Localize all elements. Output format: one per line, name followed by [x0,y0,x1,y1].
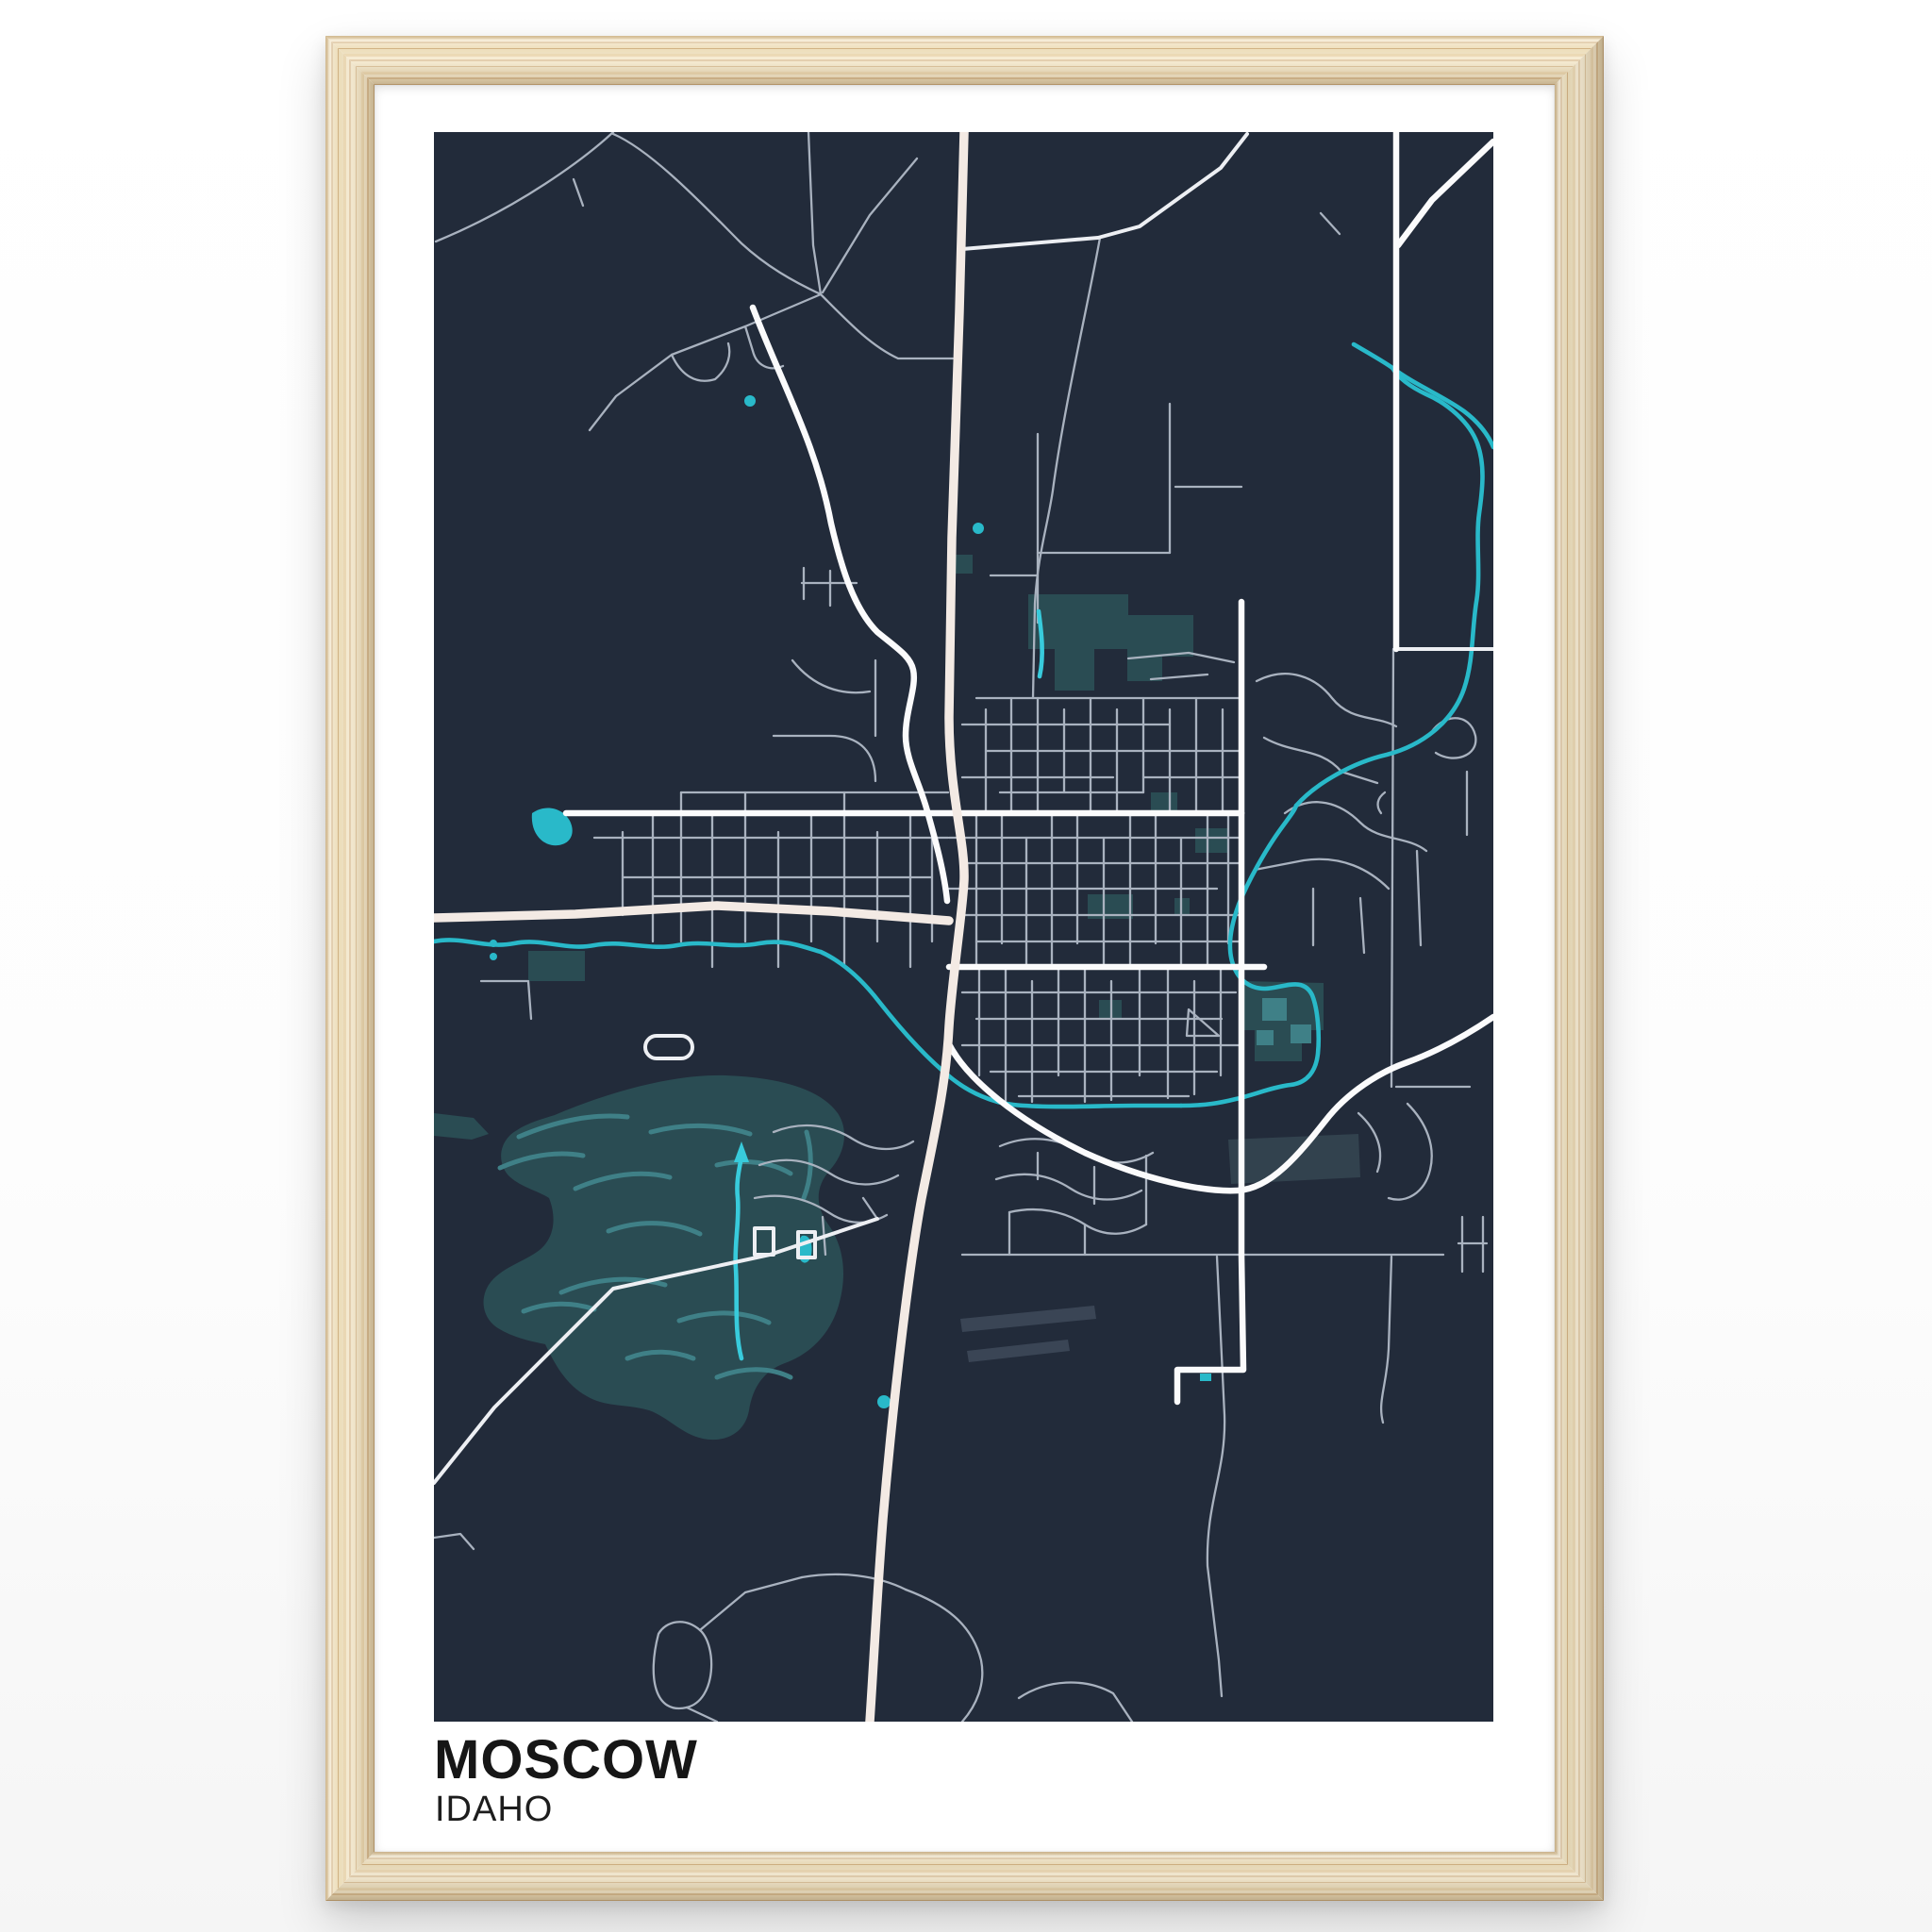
picture-frame: MOSCOW IDAHO [325,36,1604,1901]
city-map-graphic [434,132,1493,1722]
title-block: MOSCOW IDAHO [434,1732,698,1830]
poster-subtitle: IDAHO [435,1790,698,1830]
frame-right-rail [1555,36,1604,1901]
frame-bottom-rail [325,1852,1604,1901]
frame-left-rail [325,36,375,1901]
city-map [434,132,1493,1722]
frame-top-rail [325,36,1604,85]
poster-title: MOSCOW [434,1732,698,1789]
poster-sheet: MOSCOW IDAHO [375,85,1555,1852]
wall-background: { "poster": { "title": "MOSCOW", "subtit… [0,0,1932,1932]
